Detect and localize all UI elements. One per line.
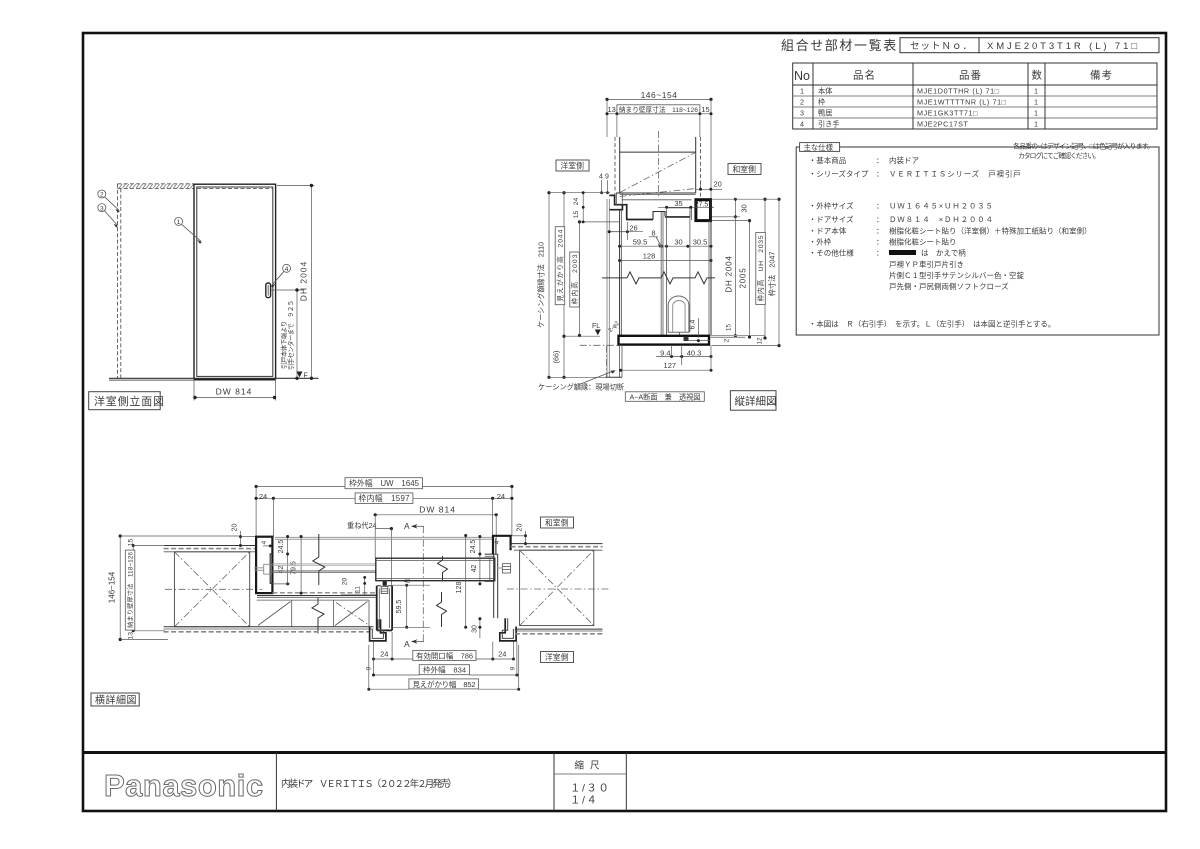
svg-text:枠: 枠 (818, 98, 825, 107)
svg-text:引き手: 引き手 (818, 120, 840, 129)
svg-text:主な仕様: 主な仕様 (804, 143, 834, 152)
svg-text:枠寸法 2047: 枠寸法 2047 (768, 252, 777, 297)
svg-text:：: ： (876, 169, 884, 178)
svg-text:24.5: 24.5 (470, 540, 477, 554)
svg-text:・その他仕様: ・その他仕様 (809, 248, 854, 258)
svg-text:9: 9 (605, 174, 609, 181)
svg-text:24: 24 (259, 492, 267, 501)
svg-text:30: 30 (674, 238, 682, 247)
svg-text:は かえで柄: は かえで柄 (921, 248, 966, 258)
svg-text:146~154: 146~154 (641, 90, 678, 100)
svg-text:11: 11 (355, 586, 362, 593)
svg-text:数: 数 (1032, 69, 1043, 82)
svg-text:24: 24 (573, 198, 580, 206)
svg-text:ＵＷ１６４５×ＵＨ２０３５: ＵＷ１６４５×ＵＨ２０３５ (889, 202, 994, 211)
svg-text:No: No (794, 69, 810, 83)
svg-text:納まり壁厚寸法 118~126: 納まり壁厚寸法 118~126 (619, 105, 698, 114)
svg-text:F: F (304, 373, 308, 380)
svg-text:20: 20 (514, 524, 523, 532)
svg-text:縦詳細図: 縦詳細図 (735, 395, 777, 408)
svg-text:・本図は Ｒ（右引手） を示す。Ｌ（左引手） は本図と逆引手: ・本図は Ｒ（右引手） を示す。Ｌ（左引手） は本図と逆引手とする。 (809, 318, 1056, 328)
svg-text:MJE1GK3TT71□: MJE1GK3TT71□ (917, 109, 978, 118)
svg-text:1: 1 (1034, 98, 1038, 107)
svg-text:24: 24 (498, 650, 506, 659)
svg-text:引手センターまで ９２５: 引手センターまで ９２５ (286, 300, 295, 370)
svg-text:1: 1 (177, 219, 181, 226)
svg-text:20: 20 (230, 524, 239, 532)
svg-text:XMJE20T3T1R (L) 71□: XMJE20T3T1R (L) 71□ (987, 41, 1137, 52)
svg-text:2: 2 (100, 192, 104, 199)
svg-text:カタログにてご確認ください。: カタログにてご確認ください。 (1018, 151, 1100, 160)
svg-text:4: 4 (599, 174, 603, 181)
svg-text:59.5: 59.5 (396, 600, 403, 614)
svg-text:4: 4 (494, 540, 501, 544)
svg-text:１/３０: １/３０ (570, 783, 610, 795)
svg-text:MJE1D0TTHR (L) 71□: MJE1D0TTHR (L) 71□ (917, 87, 1000, 96)
svg-text:和室側: 和室側 (545, 518, 569, 528)
svg-text:品番: 品番 (959, 70, 982, 82)
svg-text:横詳細図: 横詳細図 (95, 693, 137, 706)
svg-text:9.4: 9.4 (660, 348, 670, 357)
svg-text:・外枠: ・外枠 (809, 236, 832, 246)
svg-text:12: 12 (757, 337, 764, 344)
svg-text:24: 24 (380, 650, 388, 659)
svg-text:2: 2 (800, 98, 804, 107)
svg-text:洋室側: 洋室側 (561, 161, 585, 171)
svg-text:1: 1 (1034, 87, 1038, 96)
svg-text:20: 20 (342, 578, 349, 586)
svg-text:各品番の○はデザイン記号、□は色記号が入ります。: 各品番の○はデザイン記号、□は色記号が入ります。 (1013, 142, 1154, 151)
svg-text:内装ドア: 内装ドア (889, 155, 919, 165)
svg-text:30.5: 30.5 (693, 238, 708, 247)
svg-text:・基本商品: ・基本商品 (809, 155, 847, 165)
svg-text:洋室側立面図: 洋室側立面図 (94, 394, 165, 408)
svg-text:片側Ｃ１型引手サテンシルバー色・空錠: 片側Ｃ１型引手サテンシルバー色・空錠 (889, 270, 1024, 280)
svg-text:有効開口幅 786: 有効開口幅 786 (416, 650, 473, 660)
svg-text:和室側: 和室側 (733, 164, 757, 174)
svg-text:15: 15 (128, 539, 135, 547)
svg-text:4: 4 (800, 120, 804, 129)
svg-text:6.4: 6.4 (690, 320, 697, 330)
svg-text:128: 128 (643, 252, 656, 261)
svg-text:：: ： (876, 227, 884, 236)
svg-text:DW 814: DW 814 (419, 505, 456, 515)
svg-text:MJE1WTTTTNR (L) 71□: MJE1WTTTTNR (L) 71□ (917, 98, 1007, 107)
svg-text:：: ： (876, 156, 884, 165)
svg-text:内装ドア ＶＥＲＩＴＩＳ（２０２２年２月発売）: 内装ドア ＶＥＲＩＴＩＳ（２０２２年２月発売） (281, 778, 457, 790)
svg-text:1: 1 (1034, 109, 1038, 118)
svg-text:FL: FL (592, 323, 600, 330)
svg-text:枠内幅 1597: 枠内幅 1597 (359, 493, 410, 503)
svg-text:A−A断面 兼 透視図: A−A断面 兼 透視図 (630, 392, 701, 401)
svg-text:30: 30 (740, 204, 749, 212)
svg-text:：: ： (876, 202, 884, 211)
svg-text:42: 42 (471, 565, 478, 573)
svg-text:2005: 2005 (739, 268, 748, 289)
svg-text:ケーシング額縁寸法 2110: ケーシング額縁寸法 2110 (536, 242, 545, 328)
svg-text:13: 13 (128, 632, 135, 640)
svg-text:備考: 備考 (1090, 69, 1113, 82)
svg-text:戸先側・戸尻側両側ソフトクローズ: 戸先側・戸尻側両側ソフトクローズ (889, 281, 1009, 291)
svg-text:3: 3 (100, 205, 104, 212)
svg-text:20: 20 (714, 180, 722, 189)
svg-text:ＤＷ８１４ ×ＤＨ２００４: ＤＷ８１４ ×ＤＨ２００４ (889, 215, 994, 224)
svg-text:：: ： (876, 249, 884, 258)
svg-text:35: 35 (674, 199, 682, 208)
svg-text:戸襖ＹＰ車引戸片引き: 戸襖ＹＰ車引戸片引き (889, 259, 964, 269)
svg-text:樹脂化粧シート貼り: 樹脂化粧シート貼り (889, 236, 957, 246)
svg-text:MJE2PC17ST: MJE2PC17ST (917, 120, 969, 129)
svg-text:8: 8 (651, 229, 655, 238)
svg-text:1: 1 (1034, 120, 1038, 129)
svg-text:枠内高 UH 2035: 枠内高 UH 2035 (756, 235, 765, 301)
svg-text:枠外幅 834: 枠外幅 834 (423, 665, 466, 675)
svg-text:１/４: １/４ (570, 795, 598, 807)
svg-text:鴨居: 鴨居 (818, 109, 832, 118)
svg-text:9: 9 (510, 666, 517, 670)
svg-text:40: 40 (404, 579, 410, 585)
svg-text:15: 15 (726, 324, 733, 331)
svg-text:15: 15 (701, 105, 709, 114)
svg-text:Panasonic: Panasonic (104, 768, 264, 803)
svg-text:(66): (66) (552, 351, 561, 364)
svg-text:40.3: 40.3 (687, 348, 702, 357)
svg-text:品名: 品名 (853, 69, 876, 82)
svg-text:枠内高 2003: 枠内高 2003 (570, 254, 579, 304)
svg-text:24: 24 (497, 492, 505, 501)
svg-text:146~154: 146~154 (108, 571, 117, 603)
svg-text:セットＮｏ．: セットＮｏ． (910, 41, 973, 52)
svg-text:128: 128 (456, 582, 463, 594)
svg-text:15: 15 (573, 211, 580, 219)
svg-text:2: 2 (724, 338, 731, 342)
svg-text:・ドアサイズ: ・ドアサイズ (809, 214, 854, 224)
svg-text:引戸本体下端より: 引戸本体下端より (279, 321, 288, 369)
svg-text:樹脂化粧シート貼り（洋室側）＋特殊加工紙貼り（和室側）: 樹脂化粧シート貼り（洋室側）＋特殊加工紙貼り（和室側） (889, 226, 1092, 236)
svg-text:：: ： (876, 215, 884, 224)
svg-text:A: A (404, 521, 410, 531)
svg-text:洋室側: 洋室側 (545, 652, 569, 662)
svg-text:1: 1 (800, 87, 804, 96)
svg-text:重ね代24: 重ね代24 (347, 521, 377, 530)
svg-text:59.5: 59.5 (633, 238, 648, 247)
svg-text:納まり壁厚寸法 118~126: 納まり壁厚寸法 118~126 (127, 551, 135, 628)
svg-text:縮尺: 縮尺 (574, 760, 605, 772)
svg-text:DH 2004: DH 2004 (299, 261, 309, 302)
svg-text:4: 4 (261, 540, 268, 544)
svg-text:A: A (404, 639, 410, 649)
svg-text:組合せ部材一覧表: 組合せ部材一覧表 (781, 38, 898, 53)
svg-text:3: 3 (800, 109, 804, 118)
svg-text:127: 127 (664, 361, 677, 370)
svg-text:本体: 本体 (818, 87, 832, 96)
svg-text:・シリーズタイプ: ・シリーズタイプ (809, 168, 869, 178)
svg-text:見えがかり幅 852: 見えがかり幅 852 (413, 679, 476, 689)
svg-text:DH 2004: DH 2004 (725, 255, 734, 292)
svg-text:ＶＥＲＩＴＩＳシリーズ 戸襖引戸: ＶＥＲＩＴＩＳシリーズ 戸襖引戸 (889, 168, 1021, 178)
svg-text:：: ： (876, 237, 884, 246)
svg-text:30: 30 (471, 625, 478, 633)
svg-text:枠外幅 UW 1645: 枠外幅 UW 1645 (349, 478, 420, 488)
svg-text:見えがかり高 2044: 見えがかり高 2044 (555, 229, 564, 301)
svg-text:13: 13 (608, 105, 616, 114)
svg-text:DW 814: DW 814 (216, 386, 253, 396)
svg-text:26: 26 (629, 224, 637, 233)
svg-text:・ドア本体: ・ドア本体 (809, 226, 847, 236)
svg-text:24.5: 24.5 (278, 540, 285, 554)
svg-text:4: 4 (285, 266, 289, 273)
svg-text:・外枠サイズ: ・外枠サイズ (809, 201, 854, 211)
